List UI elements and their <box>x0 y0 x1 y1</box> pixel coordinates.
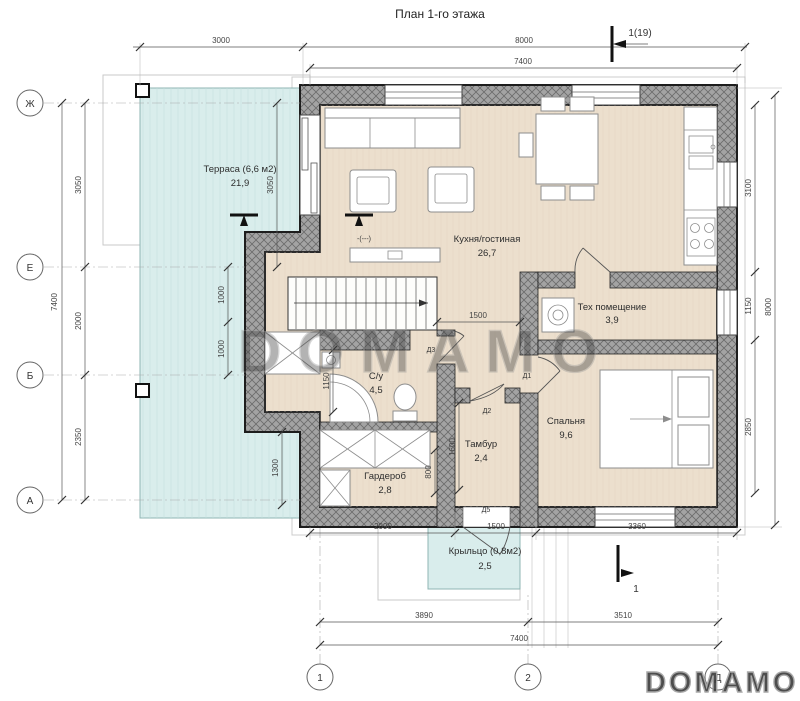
section-label-top: 1(19) <box>628 28 651 39</box>
terrace-sliding-door <box>300 115 320 215</box>
room-area-kitchen: 26,7 <box>478 248 497 259</box>
door-tag-d5: Д5 <box>482 507 491 514</box>
watermark-large: DOMAMO <box>238 318 614 385</box>
room-label-terrace: Терраса (6,6 м2) <box>203 164 276 175</box>
terrace-post <box>136 384 149 397</box>
toilet <box>393 384 417 421</box>
dim-7400-top: 7400 <box>514 57 532 66</box>
axis-zh: Ж <box>25 99 35 110</box>
dim-2350: 2350 <box>74 428 83 446</box>
dim-3050: 3050 <box>74 176 83 194</box>
window-top-1 <box>385 85 462 105</box>
dim-bottom: 2090 1500 3360 3890 3510 7400 <box>306 522 741 649</box>
dim-1000a: 1000 <box>217 286 226 304</box>
armchair <box>350 170 396 212</box>
dim-1000b: 1000 <box>217 340 226 358</box>
dim-2850: 2850 <box>744 418 753 436</box>
wardrobe-cabinet <box>320 430 430 468</box>
side-closet <box>320 470 350 506</box>
floor-plan-drawing: План 1-го этажа <box>0 0 800 701</box>
axis-b: Б <box>27 371 34 382</box>
window-right-tech <box>717 290 737 335</box>
terrace-post <box>136 84 149 97</box>
dim-1300: 1300 <box>271 459 280 477</box>
dim-3000: 3000 <box>212 36 230 45</box>
dim-7400-bottom: 7400 <box>510 634 528 643</box>
sofa <box>325 108 460 148</box>
window-right-kitchen <box>717 162 737 207</box>
section-mark-bottom: 1 <box>618 545 639 595</box>
room-area-bedroom: 9,6 <box>559 430 572 441</box>
dim-3360: 3360 <box>628 522 646 531</box>
dim-1500-door: 1500 <box>487 522 505 531</box>
dim-7400-left: 7400 <box>50 293 59 311</box>
room-area-bathroom: 4,5 <box>369 385 382 396</box>
armchair <box>428 167 474 212</box>
dim-2000: 2000 <box>74 312 83 330</box>
room-label-tech: Тех помещение <box>578 302 647 313</box>
dim-right: 3100 1150 2850 8000 <box>744 91 779 529</box>
section-label-bottom: 1 <box>633 584 639 595</box>
porch-deck <box>428 527 520 589</box>
room-label-porch: Крыльцо (0,8м2) <box>449 546 522 557</box>
section-mark-top: 1(19) <box>612 26 652 62</box>
dim-tambour-800: 800 <box>424 465 433 479</box>
dim-8000: 8000 <box>515 36 533 45</box>
room-label-wardrobe: Гардероб <box>364 471 406 482</box>
dim-1150: 1150 <box>744 297 753 315</box>
axis-2: 2 <box>525 673 531 684</box>
room-area-terrace: 21,9 <box>231 178 250 189</box>
level-value: -(---) <box>357 236 371 243</box>
room-area-porch: 2,5 <box>478 561 491 572</box>
door-tag-d2: Д2 <box>483 408 492 415</box>
room-label-kitchen: Кухня/гостиная <box>454 234 521 245</box>
kitchen-counter <box>684 107 717 265</box>
dim-2090: 2090 <box>374 522 392 531</box>
room-label-tambour: Тамбур <box>465 439 497 450</box>
watermark-corner: DOMAMO <box>645 667 798 699</box>
room-area-wardrobe: 2,8 <box>378 485 391 496</box>
axis-1: 1 <box>317 673 323 684</box>
room-label-bedroom: Спальня <box>547 416 585 427</box>
bed <box>600 370 713 468</box>
tv-console <box>350 248 440 262</box>
axis-e: Е <box>27 263 34 274</box>
dim-top: 3000 8000 7400 <box>133 36 749 72</box>
dim-3050-inner: 3050 <box>266 176 275 194</box>
page-title: План 1-го этажа <box>395 7 485 21</box>
dim-tambour-1600: 1600 <box>448 438 457 456</box>
dim-3890: 3890 <box>415 611 433 620</box>
dim-8000-right: 8000 <box>764 298 773 316</box>
floor-plan-page: План 1-го этажа <box>0 0 800 701</box>
dim-3510: 3510 <box>614 611 632 620</box>
room-area-tambour: 2,4 <box>474 453 487 464</box>
dim-3100: 3100 <box>744 179 753 197</box>
axis-a: А <box>27 496 34 507</box>
